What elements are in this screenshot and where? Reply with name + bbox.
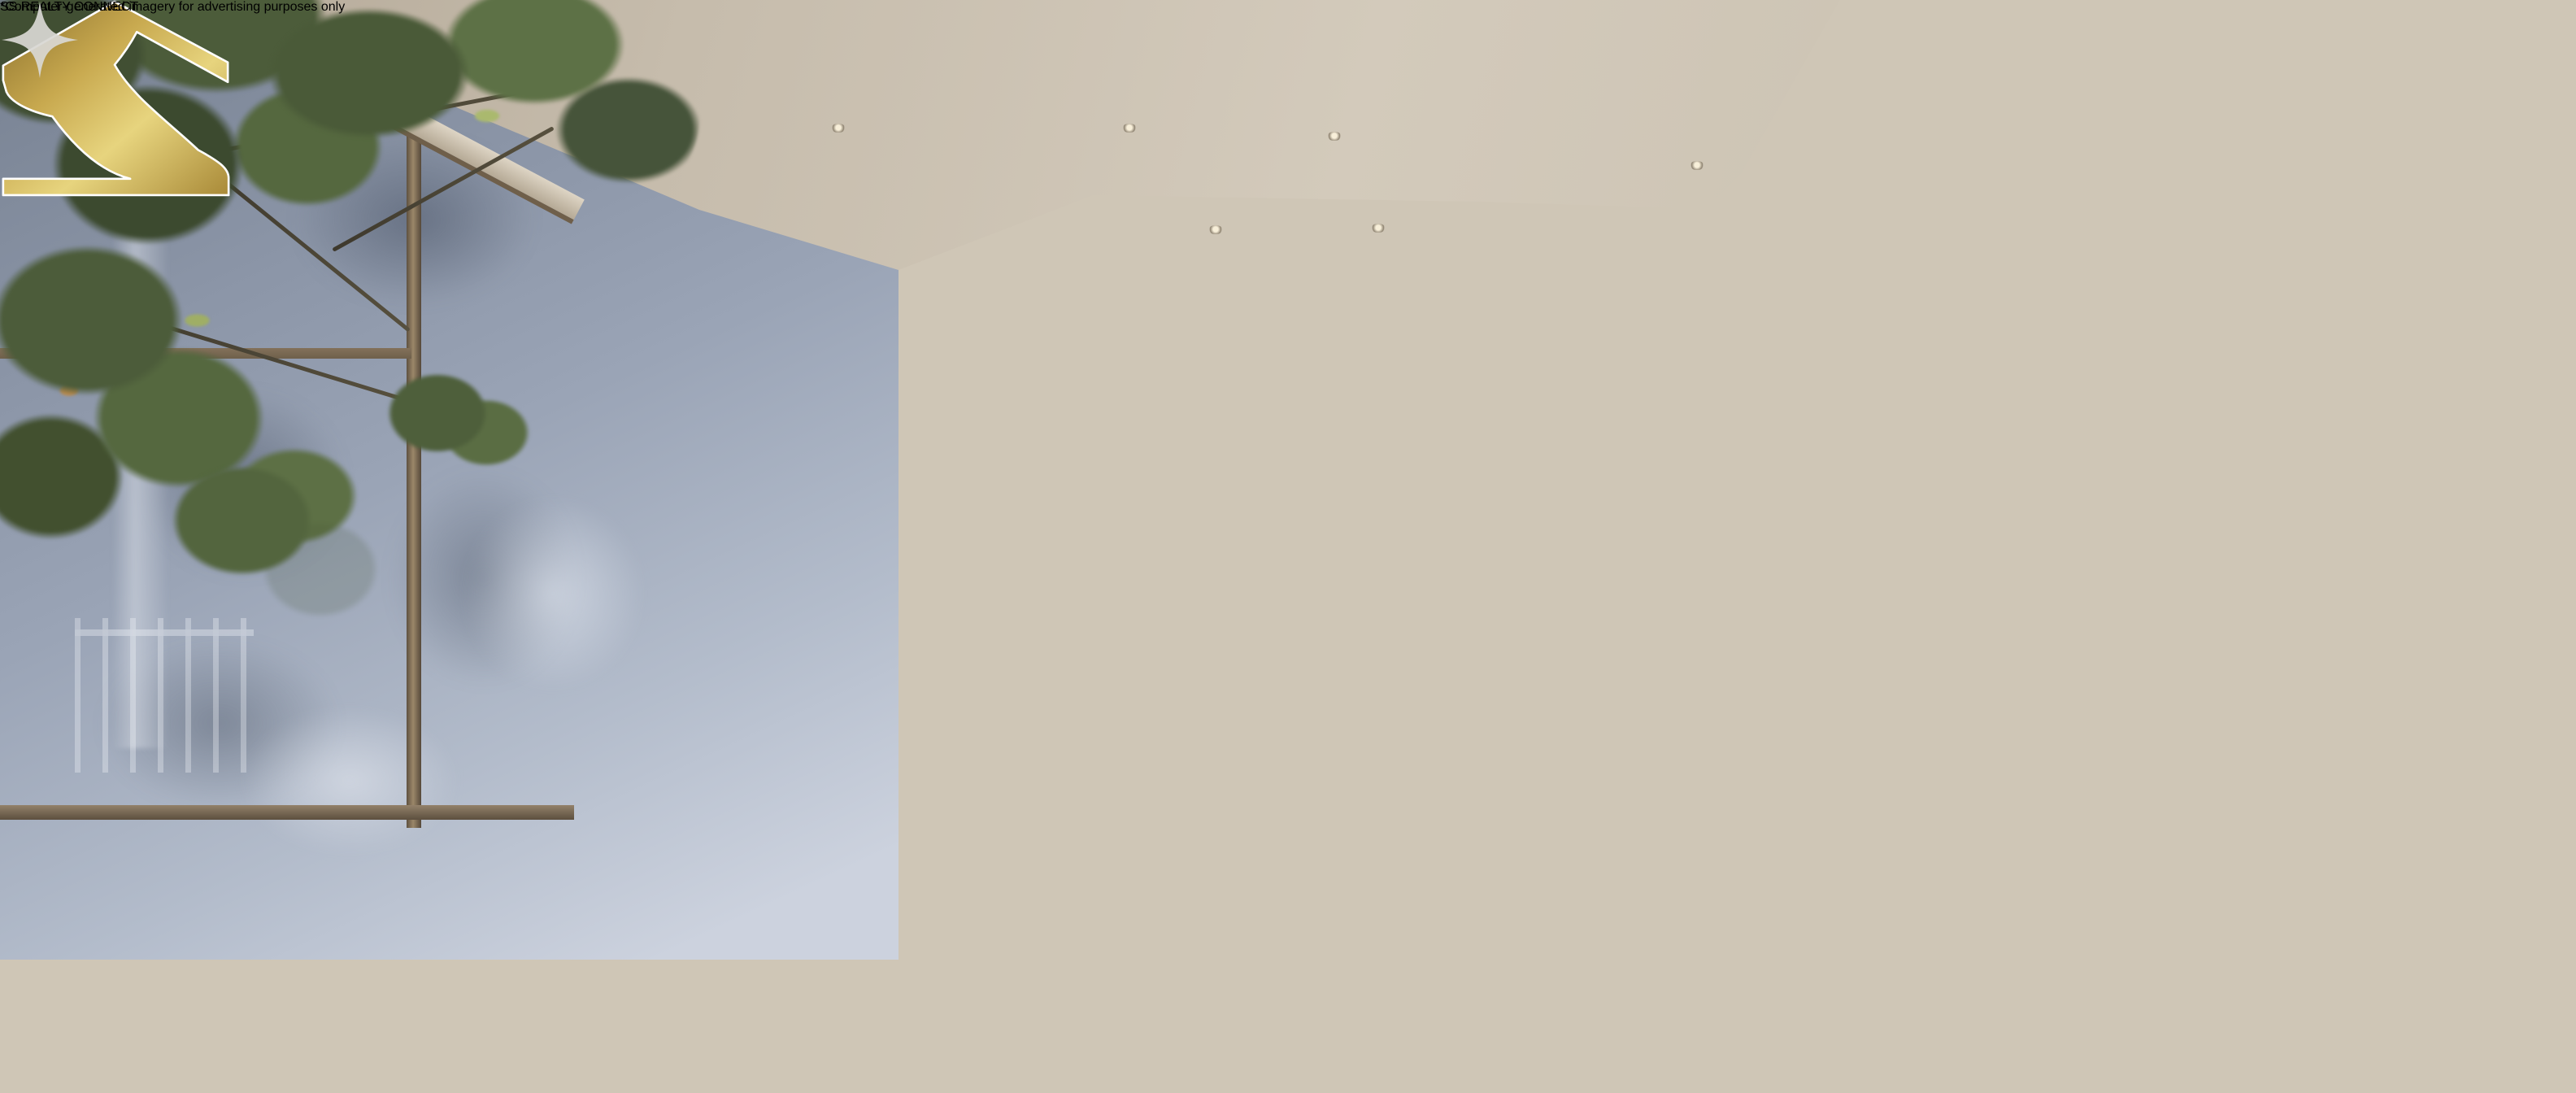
recessed-light — [1208, 225, 1223, 234]
recessed-light — [1690, 161, 1704, 170]
recessed-light — [1122, 124, 1137, 133]
recessed-light — [1371, 224, 1386, 233]
window-sill — [0, 805, 574, 820]
recessed-light — [1327, 132, 1342, 141]
recessed-light — [831, 124, 846, 133]
rendered-bedroom-scene: SS.REALTY CONNECT *Computer-generated im… — [0, 0, 2576, 1093]
wood-wall-panel — [569, 200, 667, 956]
